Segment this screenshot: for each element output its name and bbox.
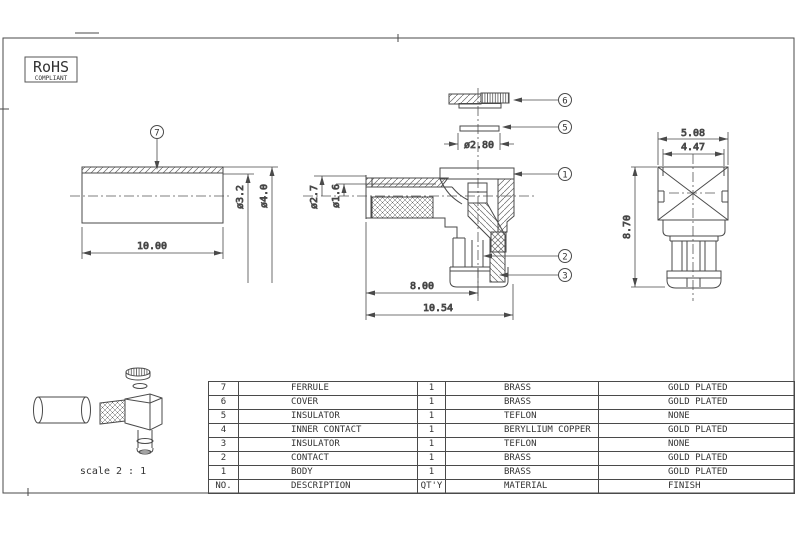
cell-description: INSULATOR xyxy=(239,438,418,452)
cell-finish: NONE xyxy=(599,410,795,424)
callout-3: 3 xyxy=(499,269,572,282)
cell-material: TEFLON xyxy=(446,410,599,424)
table-header-row: NO. DESCRIPTION QT'Y MATERIAL FINISH xyxy=(209,480,795,494)
table-row: 2 CONTACT 1 BRASS GOLD PLATED xyxy=(209,452,795,466)
assembled-3d-view xyxy=(34,368,163,454)
cell-qty: 1 xyxy=(418,382,446,396)
callout-7-number: 7 xyxy=(154,129,159,139)
knurl-band xyxy=(371,197,433,218)
body-right-wall xyxy=(498,179,514,232)
cell-finish: GOLD PLATED xyxy=(599,424,795,438)
cell-qty: 1 xyxy=(418,424,446,438)
table-row: 7 FERRULE 1 BRASS GOLD PLATED xyxy=(209,382,795,396)
dim-body-flat-width-text: 4.47 xyxy=(681,142,705,153)
cell-description: FERRULE xyxy=(239,382,418,396)
dim-ferrule-outer-dia-text: ø4.0 xyxy=(259,184,270,208)
cell-no: 7 xyxy=(209,382,239,396)
cell-description: COVER xyxy=(239,396,418,410)
cell-material: TEFLON xyxy=(446,438,599,452)
end-view-tip-cap xyxy=(667,271,721,288)
cell-description: INSULATOR xyxy=(239,410,418,424)
dim-cable-entry-dia-text: ø2.7 xyxy=(309,185,320,209)
end-view xyxy=(658,154,728,301)
cell-qty: 1 xyxy=(418,466,446,480)
callout-6: 6 xyxy=(513,94,572,107)
cell-material: BRASS xyxy=(446,466,599,480)
body-flange xyxy=(440,168,514,179)
cell-description: INNER CONTACT xyxy=(239,424,418,438)
callout-3-number: 3 xyxy=(562,272,567,282)
dim-overall-length-text: 10.54 xyxy=(423,303,453,314)
callout-1-number: 1 xyxy=(562,171,567,181)
table-row: 4 INNER CONTACT 1 BERYLLIUM COPPER GOLD … xyxy=(209,424,795,438)
cell-no: 6 xyxy=(209,396,239,410)
scale-note: scale 2 : 1 xyxy=(80,466,146,477)
dim-body-width-text: 5.08 xyxy=(681,128,705,139)
cable-jacket-3d xyxy=(34,397,91,423)
body-3d xyxy=(100,394,162,454)
connector-body xyxy=(366,168,514,287)
table-row: 5 INSULATOR 1 TEFLON NONE xyxy=(209,410,795,424)
insulator-disc-part xyxy=(460,126,499,131)
dim-insulator-dia: ø2.80 xyxy=(444,133,514,151)
ferrule-hatch-band xyxy=(82,167,223,173)
cover-disc-3d xyxy=(126,368,150,380)
cell-material: BRASS xyxy=(446,396,599,410)
dim-ferrule-length: 10.00 xyxy=(82,227,223,259)
header-material: MATERIAL xyxy=(446,480,599,494)
cell-finish: GOLD PLATED xyxy=(599,382,795,396)
cell-no: 2 xyxy=(209,452,239,466)
bom-table: 7 FERRULE 1 BRASS GOLD PLATED 6 COVER 1 … xyxy=(208,381,795,494)
cell-no: 4 xyxy=(209,424,239,438)
cell-finish: GOLD PLATED xyxy=(599,396,795,410)
table-row: 6 COVER 1 BRASS GOLD PLATED xyxy=(209,396,795,410)
cell-description: BODY xyxy=(239,466,418,480)
cell-qty: 1 xyxy=(418,452,446,466)
cell-finish: GOLD PLATED xyxy=(599,452,795,466)
header-description: DESCRIPTION xyxy=(239,480,418,494)
dim-ferrule-outer-dia: ø4.0 xyxy=(223,167,278,283)
callout-5: 5 xyxy=(502,121,572,134)
dim-body-flat-width: 4.47 xyxy=(663,142,724,166)
callout-1: 1 xyxy=(513,168,572,181)
cell-finish: NONE xyxy=(599,438,795,452)
cell-finish: GOLD PLATED xyxy=(599,466,795,480)
ferrule-side-view xyxy=(70,167,232,223)
ferrule-outline xyxy=(82,167,223,223)
table-row: 3 INSULATOR 1 TEFLON NONE xyxy=(209,438,795,452)
rohs-subtitle: COMPLIANT xyxy=(35,75,68,82)
header-no: NO. xyxy=(209,480,239,494)
dim-ferrule-inner-dia-text: ø3.2 xyxy=(235,185,246,209)
cell-no: 1 xyxy=(209,466,239,480)
insulator-disc-3d xyxy=(133,384,147,389)
dim-pin-hole-dia-text: ø1.6 xyxy=(331,184,342,208)
rohs-badge: RoHS COMPLIANT xyxy=(25,57,77,82)
cell-material: BERYLLIUM COPPER xyxy=(446,424,599,438)
cell-no: 3 xyxy=(209,438,239,452)
cell-qty: 1 xyxy=(418,410,446,424)
header-finish: FINISH xyxy=(599,480,795,494)
callout-2-number: 2 xyxy=(562,253,567,263)
dim-ferrule-inner-dia: ø3.2 xyxy=(223,174,254,283)
callout-5-number: 5 xyxy=(562,124,567,134)
callout-6-number: 6 xyxy=(562,97,567,107)
dim-body-height-text: 8.70 xyxy=(622,215,633,239)
cell-no: 5 xyxy=(209,410,239,424)
dim-port-offset-text: 8.00 xyxy=(410,281,434,292)
cell-qty: 1 xyxy=(418,438,446,452)
rohs-title: RoHS xyxy=(33,58,69,76)
dim-insulator-dia-text: ø2.80 xyxy=(464,140,494,151)
cell-description: CONTACT xyxy=(239,452,418,466)
dim-body-height: 8.70 xyxy=(622,167,665,287)
cell-material: BRASS xyxy=(446,452,599,466)
cell-material: BRASS xyxy=(446,382,599,396)
cell-qty: 1 xyxy=(418,396,446,410)
callout-7: 7 xyxy=(151,126,164,171)
dim-ferrule-length-text: 10.00 xyxy=(137,241,167,252)
end-view-flange xyxy=(663,220,725,236)
dim-overall-length: 10.54 xyxy=(366,284,513,320)
table-row: 1 BODY 1 BRASS GOLD PLATED xyxy=(209,466,795,480)
cover-part xyxy=(449,93,509,108)
header-qty: QT'Y xyxy=(418,480,446,494)
